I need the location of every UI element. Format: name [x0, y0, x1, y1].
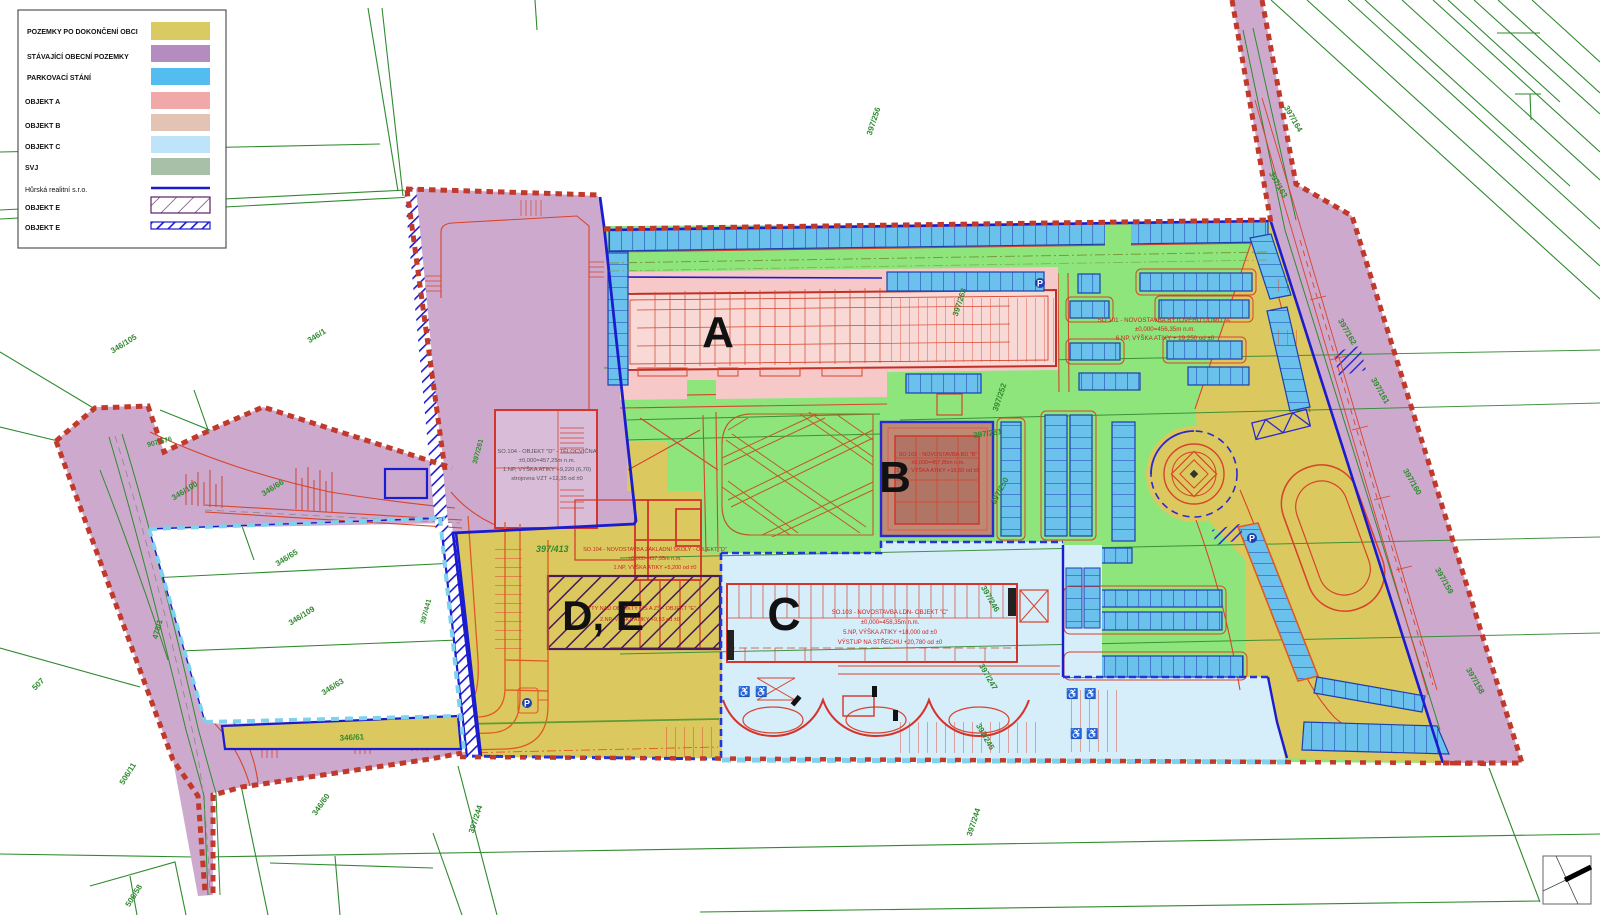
svg-text:±0,000=457,95m n.m.: ±0,000=457,95m n.m. [628, 556, 682, 562]
svg-text:SO.103 - NOVOSTAVBA LDN- OBJEK: SO.103 - NOVOSTAVBA LDN- OBJEKT "C" [832, 610, 949, 616]
svg-text:SO 101 - NOVOSTAVBA BYTOVÉHO D: SO 101 - NOVOSTAVBA BYTOVÉHO DOMU "A" [1098, 317, 1233, 324]
svg-text:397/413: 397/413 [536, 544, 569, 554]
svg-text:♿: ♿ [1084, 687, 1096, 700]
svg-text:VÝSTUP NA STŘECHU +20,780 od ±: VÝSTUP NA STŘECHU +20,780 od ±0 [838, 638, 943, 646]
svg-text:±0,000=456,35m n.m.: ±0,000=456,35m n.m. [1135, 326, 1196, 333]
svg-text:POZEMKY PO DOKONČENÍ OBCI: POZEMKY PO DOKONČENÍ OBCI [27, 27, 138, 36]
svg-text:♿: ♿ [1070, 727, 1082, 740]
svg-text:D, E: D, E [562, 592, 644, 639]
svg-text:SO.104 - NOVOSTAVBA ZÁKLADNÍ Š: SO.104 - NOVOSTAVBA ZÁKLADNÍ ŠKOLY - OBJ… [583, 546, 727, 553]
svg-text:OBJEKT B: OBJEKT B [25, 123, 60, 130]
svg-text:P: P [524, 699, 530, 709]
svg-text:STÁVAJÍCÍ OBECNÍ POZEMKY: STÁVAJÍCÍ OBECNÍ POZEMKY [27, 52, 129, 61]
svg-text:5.NP, VÝŠKA ATIKY +18,000 od ±: 5.NP, VÝŠKA ATIKY +18,000 od ±0 [843, 629, 938, 636]
svg-text:6 NP, VÝŠKA ATIKY + 19,250 od: 6 NP, VÝŠKA ATIKY + 19,250 od ±0 [1116, 335, 1215, 342]
svg-text:B: B [879, 453, 911, 502]
svg-text:♿: ♿ [1086, 727, 1098, 740]
svg-text:Hůrská realitní s.r.o.: Hůrská realitní s.r.o. [25, 186, 87, 194]
svg-text:SVJ: SVJ [25, 165, 38, 172]
svg-text:P: P [1249, 534, 1255, 544]
svg-text:OBJEKT E: OBJEKT E [25, 225, 60, 232]
svg-text:A: A [702, 308, 734, 357]
svg-text:strojovna VZT +12,35 od ±0: strojovna VZT +12,35 od ±0 [511, 476, 583, 482]
svg-text:OBJEKT A: OBJEKT A [25, 99, 60, 106]
svg-text:♿: ♿ [755, 685, 767, 698]
svg-text:1.NP, VÝŠKA ATIKY +5,200 od ±0: 1.NP, VÝŠKA ATIKY +5,200 od ±0 [614, 564, 697, 571]
svg-text:±0,000=458,35m n.m.: ±0,000=458,35m n.m. [861, 620, 920, 626]
svg-text:OBJEKT E: OBJEKT E [25, 205, 60, 212]
svg-text:C: C [767, 588, 800, 640]
svg-text:PARKOVACÍ STÁNÍ: PARKOVACÍ STÁNÍ [27, 73, 92, 82]
svg-text:346/61: 346/61 [339, 732, 364, 742]
svg-text:OBJEKT C: OBJEKT C [25, 144, 60, 151]
svg-text:♿: ♿ [738, 685, 750, 698]
svg-text:P: P [1037, 279, 1043, 289]
svg-text:1.NP, VÝŠKA ATIKY +9,220 (6,70: 1.NP, VÝŠKA ATIKY +9,220 (6,70) [503, 466, 591, 473]
svg-text:SO.104 - OBJEKT "D" - TĚLOCVIČ: SO.104 - OBJEKT "D" - TĚLOCVIČNA [497, 447, 596, 455]
svg-text:♿: ♿ [1066, 687, 1078, 700]
svg-text:±0,000=457,85m n.m.: ±0,000=457,85m n.m. [911, 460, 965, 466]
svg-text:±0,000=457,25m n.m.: ±0,000=457,25m n.m. [519, 458, 576, 464]
